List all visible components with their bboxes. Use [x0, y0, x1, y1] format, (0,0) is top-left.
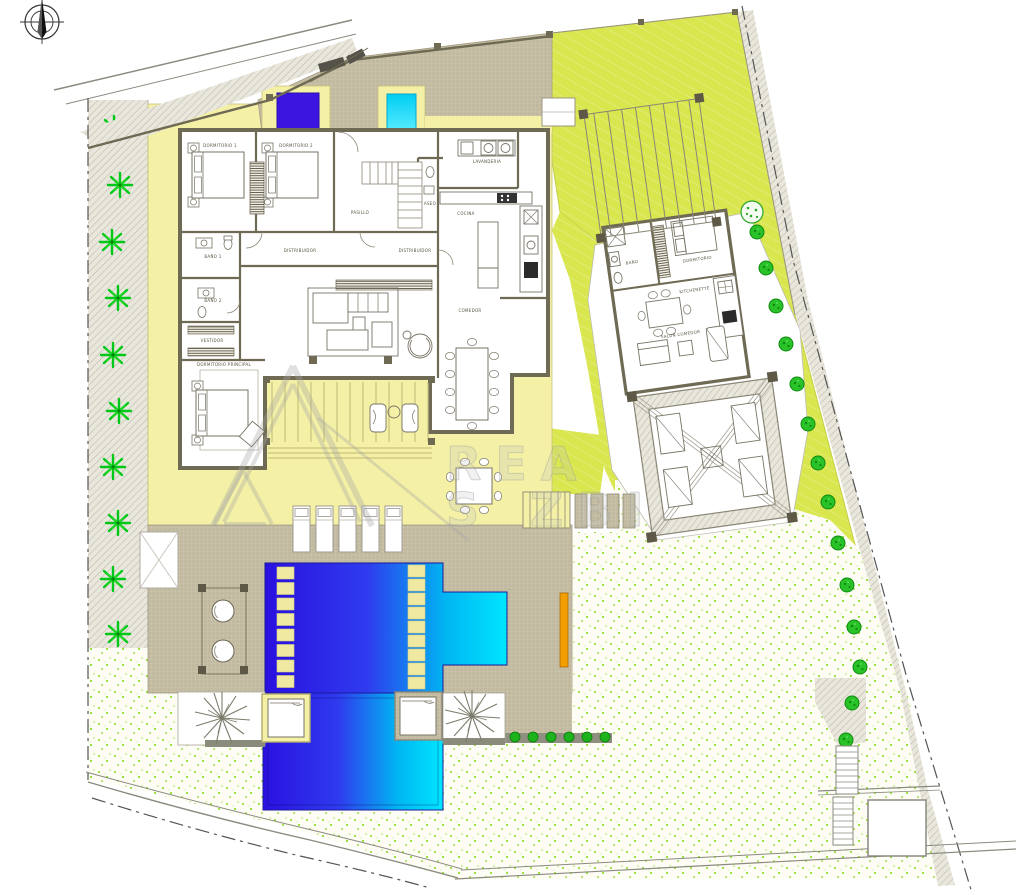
laundry-label: LAVANDERIA	[473, 159, 501, 164]
water-square-blue	[277, 93, 319, 132]
laundry-fixtures	[458, 140, 515, 156]
pool-bench-orange	[560, 593, 568, 667]
kitchen-label: COCINA	[457, 211, 474, 216]
pool-cabana-left	[262, 694, 310, 742]
wardrobe	[188, 326, 234, 334]
site-plan-canvas: BAÑO DORMITORIO KITCHENETTE SALON COMEDO…	[0, 0, 1018, 895]
water-square-cyan	[387, 94, 416, 131]
wc-label: ASEO	[424, 201, 436, 206]
watermark-line2-left: S	[446, 483, 493, 537]
hall-label: PASILLO	[351, 210, 369, 215]
watermark-line2-right: ZBI	[530, 483, 658, 537]
dressing-label: VESTIDOR	[201, 338, 224, 343]
corridor-label: DISTRIBUIDOR	[284, 248, 317, 253]
bath2-label: BAÑO 2	[204, 298, 221, 303]
bedroom2-label: DORMITORIO 2	[279, 143, 313, 148]
spa-platform	[198, 584, 248, 674]
bedroom1-label: DORMITORIO 1	[203, 143, 237, 148]
bed	[262, 143, 318, 207]
compass-north-icon	[20, 0, 64, 44]
master-bedroom-label: DORMITORIO PRINCIPAL	[197, 362, 252, 367]
dining-label: COMEDOR	[458, 308, 481, 313]
bath1-label: BAÑO 1	[204, 254, 221, 259]
wardrobe	[250, 162, 264, 214]
bed	[188, 143, 244, 207]
sun-loungers	[293, 506, 402, 552]
guest-dining-table	[646, 297, 683, 327]
wardrobe	[188, 348, 234, 356]
wardrobe	[336, 280, 432, 290]
corridor2-label: DISTRIBUIDOR	[399, 248, 432, 253]
guest-house: BAÑO DORMITORIO KITCHENETTE SALON COMEDO…	[603, 210, 749, 394]
pool-cabana-right	[395, 692, 442, 740]
garage-pad	[868, 800, 926, 856]
equipment-pad	[542, 98, 575, 126]
site-plan: BAÑO DORMITORIO KITCHENETTE SALON COMEDO…	[0, 0, 1018, 895]
kitchen-island	[478, 222, 498, 288]
west-access-pad	[140, 532, 178, 588]
guest-sofa	[637, 340, 670, 366]
